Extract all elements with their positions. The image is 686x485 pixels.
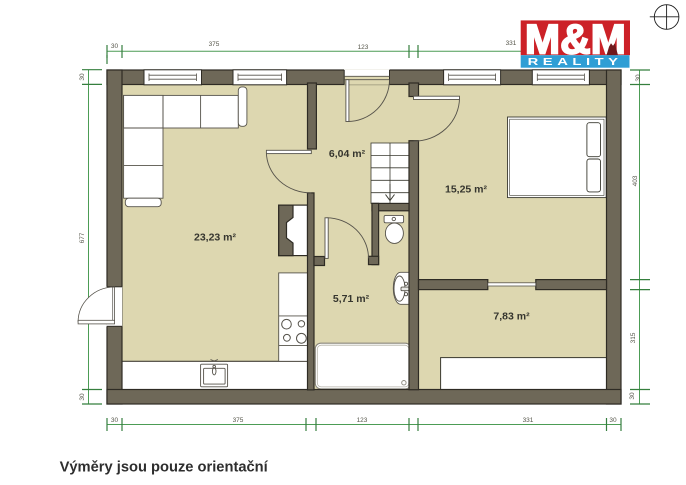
svg-text:677: 677 [79, 232, 86, 243]
svg-text:6,04 m²: 6,04 m² [329, 148, 366, 160]
svg-text:331: 331 [523, 417, 534, 424]
svg-text:30: 30 [609, 417, 617, 424]
svg-text:30: 30 [111, 43, 119, 50]
svg-text:375: 375 [209, 41, 220, 48]
svg-text:375: 375 [233, 417, 244, 424]
svg-text:30: 30 [111, 417, 119, 424]
svg-text:315: 315 [630, 332, 637, 343]
svg-text:403: 403 [632, 175, 639, 186]
svg-text:331: 331 [506, 40, 517, 47]
svg-text:23,23 m²: 23,23 m² [194, 232, 237, 244]
svg-text:123: 123 [357, 417, 368, 424]
svg-text:30: 30 [629, 392, 636, 400]
svg-text:15,25 m²: 15,25 m² [445, 184, 488, 196]
svg-text:REALITY: REALITY [528, 57, 623, 68]
svg-text:5,71 m²: 5,71 m² [333, 293, 370, 305]
svg-text:7,83 m²: 7,83 m² [493, 311, 530, 323]
svg-text:30: 30 [635, 74, 642, 82]
svg-text:30: 30 [79, 73, 86, 81]
svg-text:30: 30 [79, 393, 86, 401]
svg-text:Výměry jsou pouze orientační: Výměry jsou pouze orientační [60, 460, 269, 476]
svg-text:123: 123 [358, 44, 369, 51]
